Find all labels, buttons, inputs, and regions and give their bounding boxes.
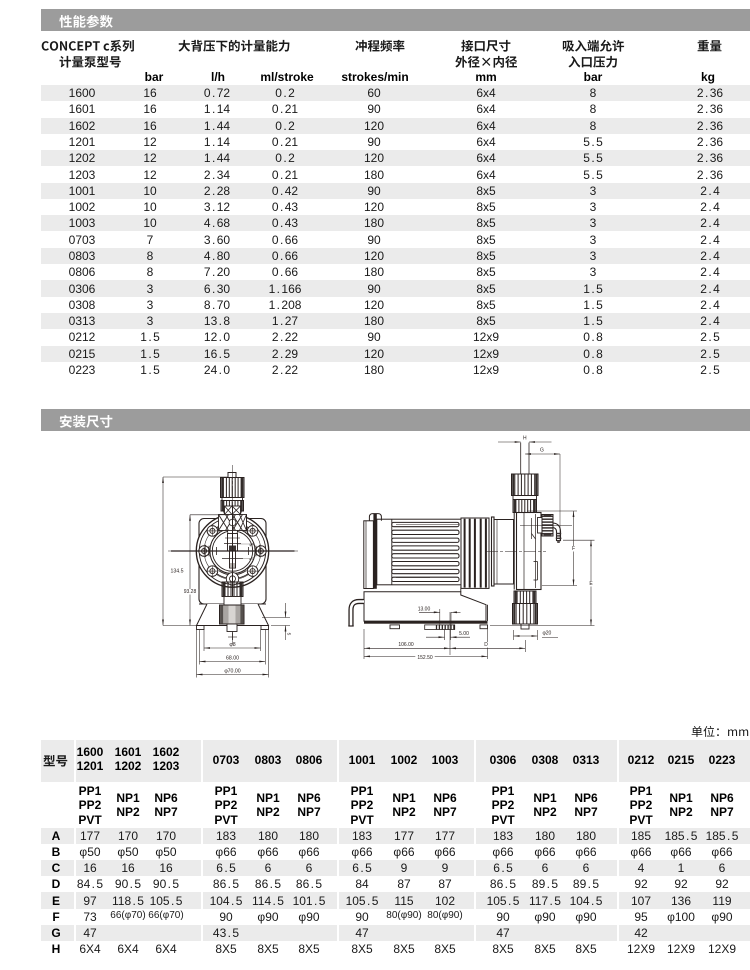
svg-text:φ20: φ20 <box>543 631 552 637</box>
svg-text:68.00: 68.00 <box>226 656 239 662</box>
svg-text:φ7: φ7 <box>249 557 254 561</box>
svg-text:152.50: 152.50 <box>417 655 433 661</box>
svg-text:134.5: 134.5 <box>171 569 184 575</box>
svg-text:93.28: 93.28 <box>184 589 197 595</box>
svg-text:G: G <box>540 448 544 454</box>
svg-text:φ4: φ4 <box>249 543 254 547</box>
svg-text:D: D <box>484 642 488 648</box>
svg-text:φ8: φ8 <box>229 642 235 648</box>
svg-text:5.00: 5.00 <box>459 631 469 637</box>
svg-text:φ70.00: φ70.00 <box>224 669 240 675</box>
svg-text:106.00: 106.00 <box>398 642 414 648</box>
svg-text:5: 5 <box>286 633 292 636</box>
svg-text:H: H <box>523 436 527 442</box>
svg-text:F: F <box>572 546 575 552</box>
svg-text:13.00: 13.00 <box>418 607 431 613</box>
